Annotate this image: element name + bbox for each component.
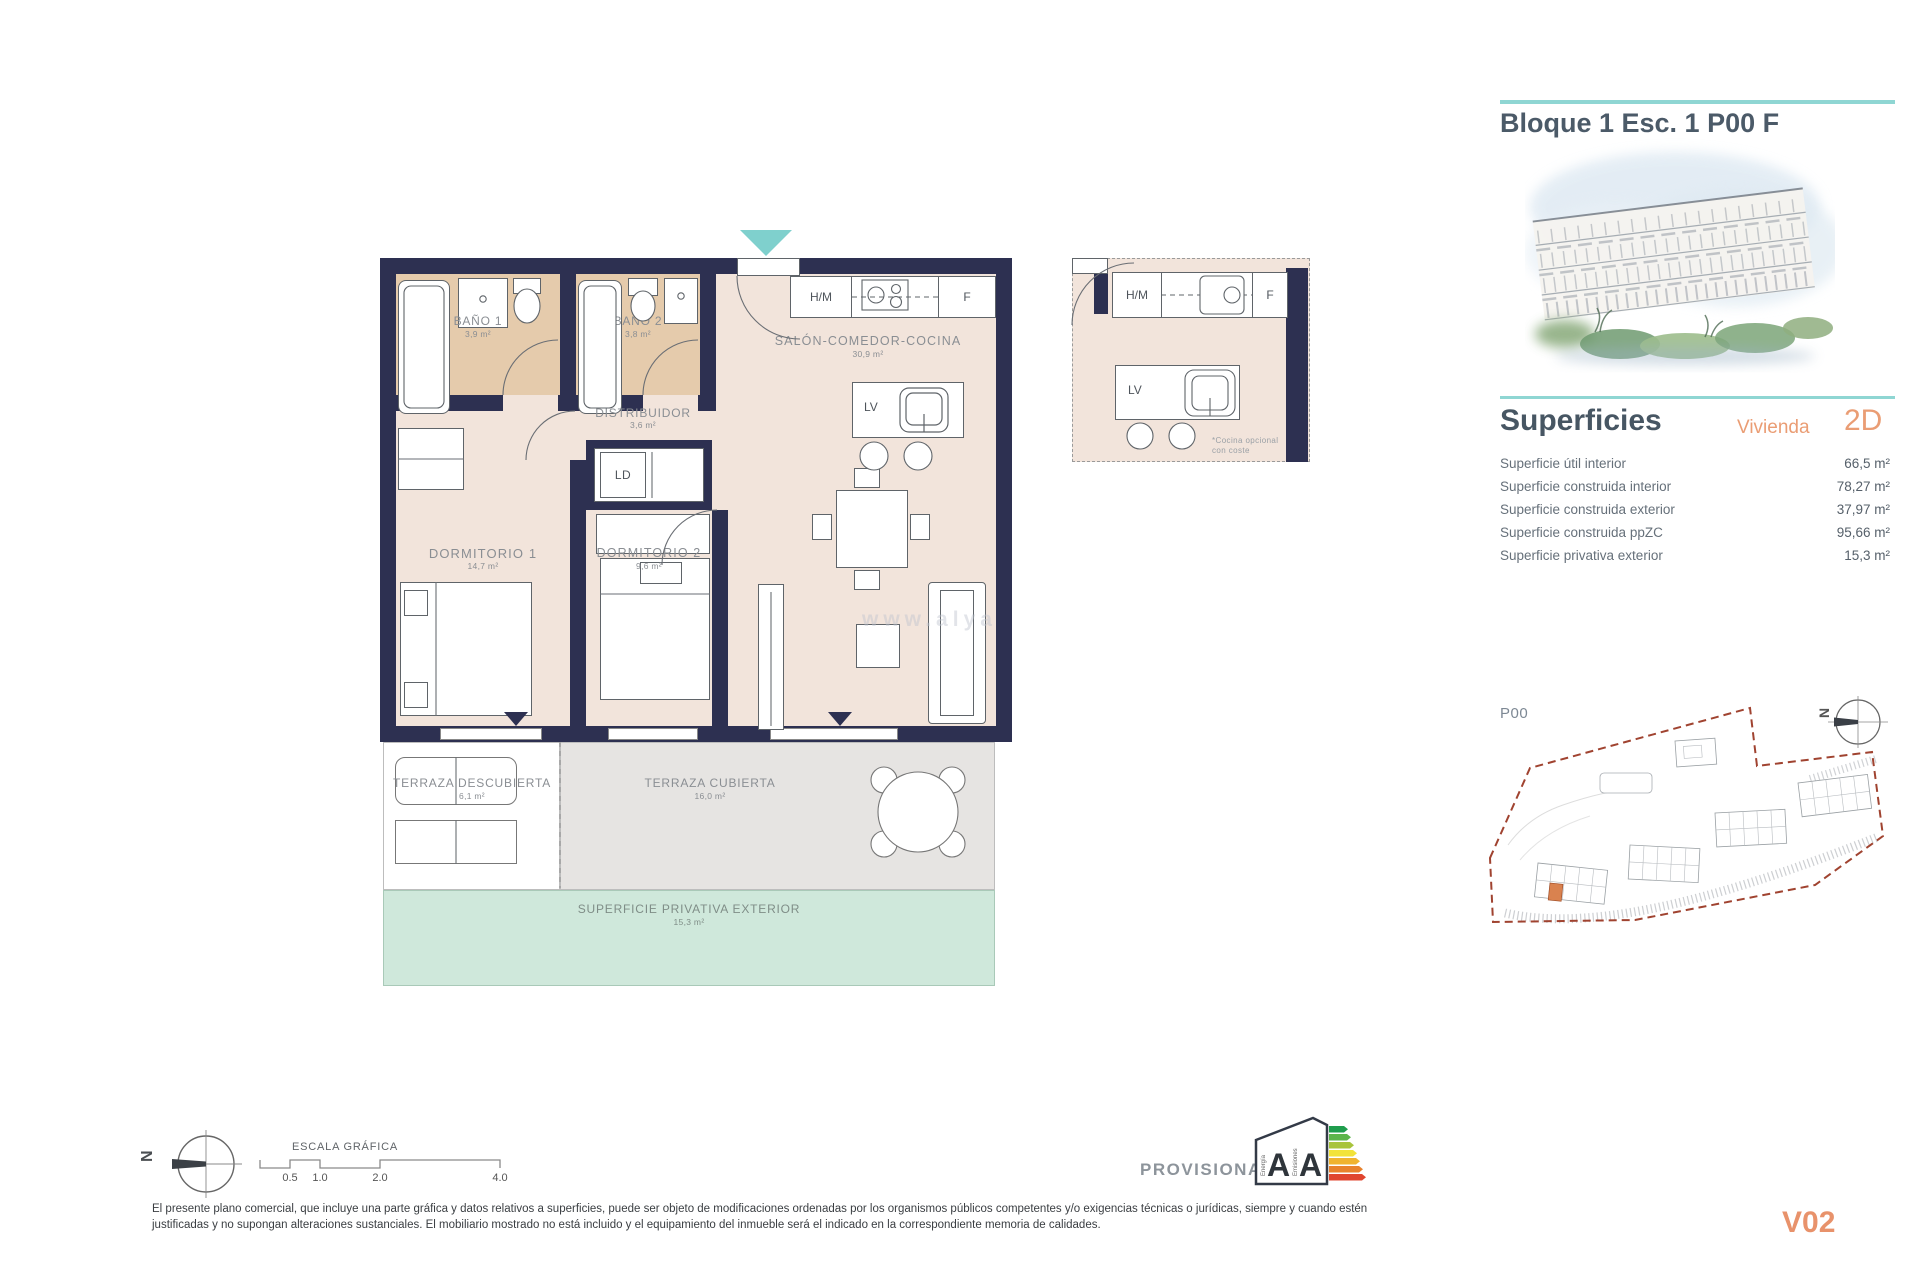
dining-chair <box>812 514 832 540</box>
version-label: V02 <box>1782 1206 1835 1240</box>
salon-area: 30,9 m² <box>740 349 996 359</box>
superficie-privativa-area: 15,3 m² <box>383 917 995 927</box>
distribuidor-label: DISTRIBUIDOR <box>563 406 723 420</box>
dorm1-label: DORMITORIO 1 <box>396 546 570 561</box>
detail-right-wall <box>1286 268 1308 462</box>
salon-slider-window <box>770 728 898 740</box>
superficie-label: Superficie construida exterior <box>1500 502 1675 517</box>
entrance-arrow-icon <box>740 230 792 256</box>
terraza-descubierta-area: 6,1 m² <box>388 791 556 801</box>
lv-label: LV <box>864 400 878 414</box>
dining-table <box>836 490 908 568</box>
detail-lv-label: LV <box>1128 383 1142 397</box>
superficies-row: Superficie construida interior78,27 m² <box>1500 475 1890 498</box>
wall-dorm2-salon <box>712 510 728 726</box>
superficie-value: 95,66 m² <box>1837 525 1890 540</box>
scale-bar-title: ESCALA GRÁFICA <box>292 1141 398 1153</box>
kitchen-counter <box>851 276 939 318</box>
superficie-label: Superficie construida interior <box>1500 479 1671 494</box>
salon-label: SALÓN-COMEDOR-COCINA <box>740 334 996 348</box>
superficie-privativa-label: SUPERFICIE PRIVATIVA EXTERIOR <box>383 902 995 916</box>
kitchen-fridge: F <box>938 276 996 318</box>
detail-fridge-label: F <box>1266 288 1273 302</box>
kitchen-hm-cabinet: H/M <box>790 276 852 318</box>
disclaimer-text: El presente plano comercial, que incluye… <box>152 1202 1392 1233</box>
fridge-label: F <box>963 290 970 304</box>
watermark: www.alya <box>862 608 997 632</box>
teal-divider-superficies <box>1500 396 1895 399</box>
ld-unit: LD <box>600 452 646 498</box>
vivienda-code: 2D <box>1844 404 1882 438</box>
superficie-label: Superficie privativa exterior <box>1500 548 1663 563</box>
shelf-unit <box>758 584 784 730</box>
detail-note-line1: *Cocina opcional <box>1212 436 1278 445</box>
superficies-row: Superficie construida ppZC95,66 m² <box>1500 521 1890 544</box>
superficie-value: 66,5 m² <box>1844 456 1890 471</box>
terraza-descubierta-label: TERRAZA DESCUBIERTA <box>388 776 556 790</box>
bano2-label: BAÑO 2 <box>576 314 700 328</box>
ld-label: LD <box>615 468 631 482</box>
site-plan: N <box>1480 695 1910 940</box>
energy-text: Energía <box>1261 1154 1267 1176</box>
detail-hm-cabinet: H/M <box>1112 272 1162 318</box>
dorm1-pillow <box>404 682 428 708</box>
detail-hm-label: H/M <box>1126 288 1148 302</box>
emissions-text: Emisiones <box>1293 1148 1299 1176</box>
detail-door <box>1072 258 1108 274</box>
dining-chair <box>854 570 880 590</box>
dorm1-area: 14,7 m² <box>396 561 570 571</box>
emissions-letter: A <box>1299 1147 1322 1183</box>
detail-note: *Cocina opcional con coste <box>1212 436 1302 457</box>
superficie-label: Superficie construida ppZC <box>1500 525 1663 540</box>
building-render <box>1525 132 1835 387</box>
superficies-row: Superficie privativa exterior15,3 m² <box>1500 544 1890 567</box>
floorplan-sheet: LD H/M F LV BAÑO 1 3,9 m² BAÑO 2 3,8 m² … <box>0 0 1920 1280</box>
superficie-label: Superficie útil interior <box>1500 456 1626 471</box>
wall-dorm1-dorm2 <box>570 460 586 726</box>
dorm1-window <box>440 728 542 740</box>
wall-bano1-bano2 <box>560 274 576 395</box>
superficies-table: Superficie útil interior66,5 m² Superfic… <box>1500 452 1890 567</box>
superficie-value: 37,97 m² <box>1837 502 1890 517</box>
bano2-sink-base <box>628 278 658 296</box>
dorm1-pillow <box>404 590 428 616</box>
dining-chair <box>910 514 930 540</box>
siteplan-north-letter: N <box>1816 708 1832 718</box>
sun-lounger <box>395 820 517 864</box>
bano1-toilet-tank <box>513 278 541 294</box>
north-compass-icon: N <box>128 1126 253 1206</box>
energy-rating-icon: A A Energía Emisiones <box>1253 1114 1378 1196</box>
bano2-bathtub <box>578 280 622 414</box>
superficie-value: 78,27 m² <box>1837 479 1890 494</box>
highlighted-unit <box>1548 883 1563 901</box>
scale-tick: 0.5 <box>275 1172 305 1184</box>
detail-fridge: F <box>1252 272 1288 318</box>
bano2-area: 3,8 m² <box>576 329 700 339</box>
teal-divider-top <box>1500 100 1895 104</box>
scale-tick: 1.0 <box>305 1172 335 1184</box>
superficies-title: Superficies <box>1500 404 1662 438</box>
terraza-cubierta-area: 16,0 m² <box>560 791 860 801</box>
hm-label: H/M <box>810 290 832 304</box>
wall-bano2-hall <box>700 274 716 395</box>
dorm2-window <box>608 728 698 740</box>
dining-chair <box>854 468 880 488</box>
detail-note-line2: con coste <box>1212 446 1250 455</box>
energy-letter: A <box>1267 1147 1290 1183</box>
superficies-row: Superficie construida exterior37,97 m² <box>1500 498 1890 521</box>
dorm2-label: DORMITORIO 2 <box>586 546 712 560</box>
superficies-row: Superficie útil interior66,5 m² <box>1500 452 1890 475</box>
compass-north-letter: N <box>139 1150 156 1162</box>
entrance-door <box>737 258 800 276</box>
superficie-value: 15,3 m² <box>1844 548 1890 563</box>
bano1-area: 3,9 m² <box>396 329 560 339</box>
bano1-label: BAÑO 1 <box>396 314 560 328</box>
dorm1-wardrobe <box>398 428 464 490</box>
vivienda-label: Vivienda <box>1737 417 1810 439</box>
scale-tick: 4.0 <box>485 1172 515 1184</box>
scale-tick: 2.0 <box>365 1172 395 1184</box>
distribuidor-area: 3,6 m² <box>563 420 723 430</box>
detail-counter <box>1161 272 1253 318</box>
dorm2-area: 9,6 m² <box>586 561 712 571</box>
bano1-bathtub <box>398 280 450 414</box>
siteplan-compass-icon: N <box>1816 696 1888 748</box>
terraza-cubierta <box>560 742 995 890</box>
terraza-cubierta-label: TERRAZA CUBIERTA <box>560 776 860 790</box>
